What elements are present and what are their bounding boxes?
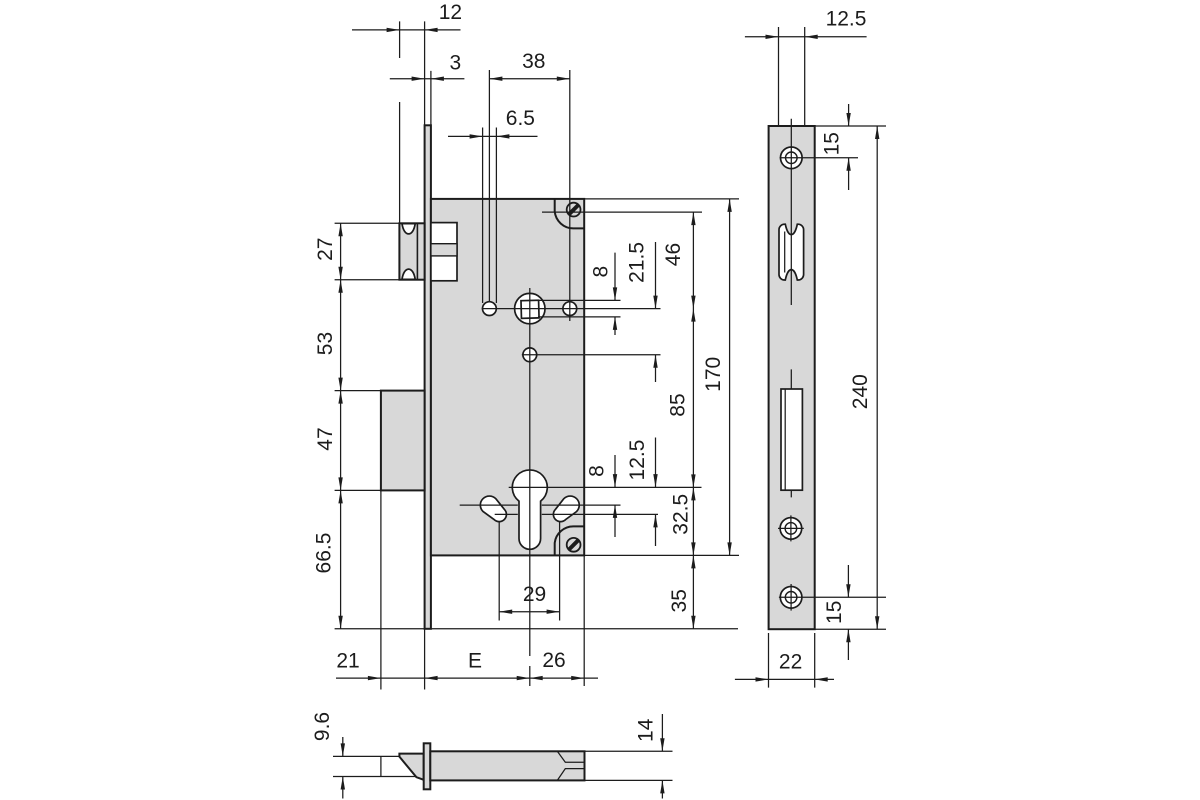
svg-text:240: 240	[849, 374, 872, 409]
svg-text:6.5: 6.5	[506, 107, 535, 130]
svg-text:21.5: 21.5	[626, 242, 649, 283]
svg-text:35: 35	[668, 589, 691, 612]
svg-text:14: 14	[634, 718, 657, 742]
svg-text:27: 27	[314, 238, 337, 261]
svg-text:46: 46	[662, 243, 685, 266]
svg-text:32.5: 32.5	[670, 494, 693, 535]
svg-text:8: 8	[590, 266, 613, 278]
svg-text:3: 3	[449, 51, 461, 74]
svg-text:66.5: 66.5	[312, 533, 335, 574]
svg-text:47: 47	[314, 427, 337, 450]
svg-text:12.5: 12.5	[826, 7, 867, 30]
svg-text:53: 53	[314, 332, 337, 355]
svg-text:E: E	[468, 649, 482, 672]
svg-text:26: 26	[542, 649, 565, 672]
svg-text:38: 38	[522, 50, 545, 73]
svg-text:8: 8	[586, 465, 609, 477]
svg-text:170: 170	[702, 357, 725, 392]
svg-text:22: 22	[779, 651, 802, 674]
svg-text:85: 85	[667, 393, 690, 416]
svg-text:9.6: 9.6	[311, 712, 334, 741]
svg-text:15: 15	[823, 601, 846, 624]
svg-text:15: 15	[821, 132, 844, 155]
svg-text:21: 21	[336, 649, 359, 672]
svg-text:12: 12	[439, 1, 462, 24]
svg-text:12.5: 12.5	[626, 440, 649, 481]
svg-text:29: 29	[523, 583, 546, 606]
